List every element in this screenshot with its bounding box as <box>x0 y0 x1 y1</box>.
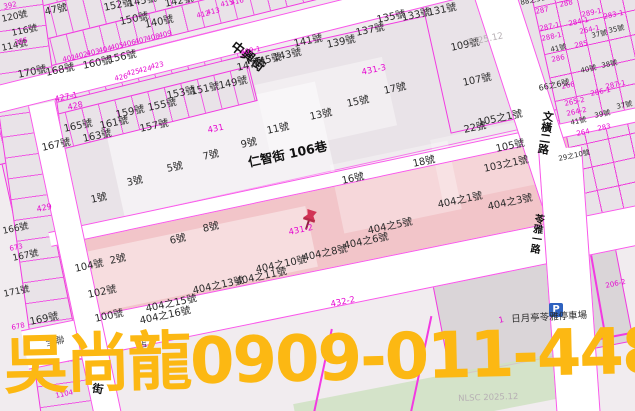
map-label: 3號 <box>126 176 144 189</box>
map-label: 104號 <box>74 259 105 275</box>
map-label: 404之1號 <box>437 192 484 211</box>
map-label: 38號 <box>601 60 618 70</box>
map-label: 287-1 <box>605 80 626 91</box>
map-label: 392 <box>3 1 18 11</box>
map-label: 29之10號 <box>558 149 591 162</box>
map-label: 169號 <box>29 312 60 328</box>
map-label: 41號 <box>570 117 587 127</box>
map-label: 37號 <box>616 101 633 111</box>
map-label: 416 <box>230 0 245 7</box>
map-label: 163號 <box>82 129 113 145</box>
map-label: 105之1號 <box>477 110 524 129</box>
map-label: 37號 <box>591 30 608 40</box>
map-label: 166號 <box>2 223 29 237</box>
map-label: 139號 <box>326 35 357 51</box>
map-label: 18號 <box>412 155 436 170</box>
map-label: 16號 <box>341 172 365 187</box>
map-label: 1號 <box>90 193 108 206</box>
map-label: 2025.12 <box>466 32 504 49</box>
map-label: 苓雅一路 <box>527 213 542 254</box>
map-label: 425 <box>126 68 141 78</box>
map-label: 409 <box>158 30 173 40</box>
map-label: 170號 <box>17 65 48 81</box>
map-label: 404之3號 <box>487 194 534 213</box>
map-label: 8號 <box>202 222 220 235</box>
map-label: 5號 <box>166 162 184 175</box>
map-label: 39號 <box>594 110 611 120</box>
map-label: 283-1 <box>603 10 624 21</box>
map-label: 100號 <box>94 309 125 325</box>
map-label: 404之13號 <box>192 276 245 297</box>
map-label: 429 <box>36 203 53 214</box>
map-label: 168號 <box>45 63 76 79</box>
map-label: 404之6號 <box>343 233 390 252</box>
map-label: 167號 <box>12 250 39 264</box>
map-label: 47號 <box>44 3 68 18</box>
map-label: 156號 <box>107 50 138 66</box>
map-label: NLSC 2025.12 <box>458 393 519 404</box>
map-label: 413 <box>206 7 221 17</box>
map-label: 157號 <box>139 119 170 135</box>
map-label: 431 <box>207 124 225 136</box>
map-label: 404之8號 <box>302 245 349 264</box>
map-label: 167號 <box>41 138 72 154</box>
contact-overlay: 吳尚龍0909-011-448 <box>3 320 635 399</box>
map-label: 9號 <box>240 138 258 151</box>
map-label: 431-2 <box>288 224 314 237</box>
map-label: 仁智街 106巷 <box>247 140 328 169</box>
map-label: 431-3 <box>361 64 387 77</box>
map-label: 283 <box>597 123 612 133</box>
map-label: 142號 <box>164 0 195 10</box>
map-label: 107號 <box>462 73 493 89</box>
map-label: 287 <box>535 6 550 16</box>
cadastral-map: P 中興街仁智街 106巷文橫二路苓雅一路街47號152號145號142號150… <box>0 0 635 411</box>
map-label: 11號 <box>266 122 290 137</box>
map-label: 141號 <box>293 34 324 50</box>
map-label: 7號 <box>202 150 220 163</box>
map-label: 288-1 <box>541 32 562 43</box>
map-label: 2號 <box>109 254 127 267</box>
map-label: 151號 <box>190 82 221 98</box>
map-label: 文橫二路 <box>537 110 554 155</box>
map-label: 143號 <box>272 48 303 64</box>
map-label: 145號 <box>127 0 158 10</box>
map-label: 432-2 <box>330 296 356 309</box>
map-label: 131號 <box>427 3 458 19</box>
map-label: 428 <box>67 101 84 112</box>
map-label: 40號 <box>580 65 597 75</box>
map-label: 35號 <box>608 25 625 35</box>
map-label: 206-2 <box>605 279 626 290</box>
map-label: 6號 <box>169 234 187 247</box>
map-label: 155號 <box>147 98 178 114</box>
map-label: 15號 <box>346 95 370 110</box>
map-label: 120號 <box>1 11 28 25</box>
map-label: 103之1號 <box>483 156 530 175</box>
map-label: 149號 <box>218 76 249 92</box>
map-label: 137號 <box>355 23 386 39</box>
map-label: 286 <box>551 54 566 64</box>
map-label: 288 <box>559 0 574 9</box>
map-label: 171號 <box>3 286 30 300</box>
map-label: 426 <box>114 73 129 83</box>
map-label: 102號 <box>87 285 118 301</box>
map-label: 285 <box>574 40 589 50</box>
map-label: 17號 <box>383 82 407 97</box>
map-label: 105號 <box>495 139 526 155</box>
map-label: 13號 <box>309 108 333 123</box>
map-label: 41號 <box>550 44 567 54</box>
map-label: 66之6號 <box>538 78 570 92</box>
map-label: 264 <box>576 128 591 138</box>
